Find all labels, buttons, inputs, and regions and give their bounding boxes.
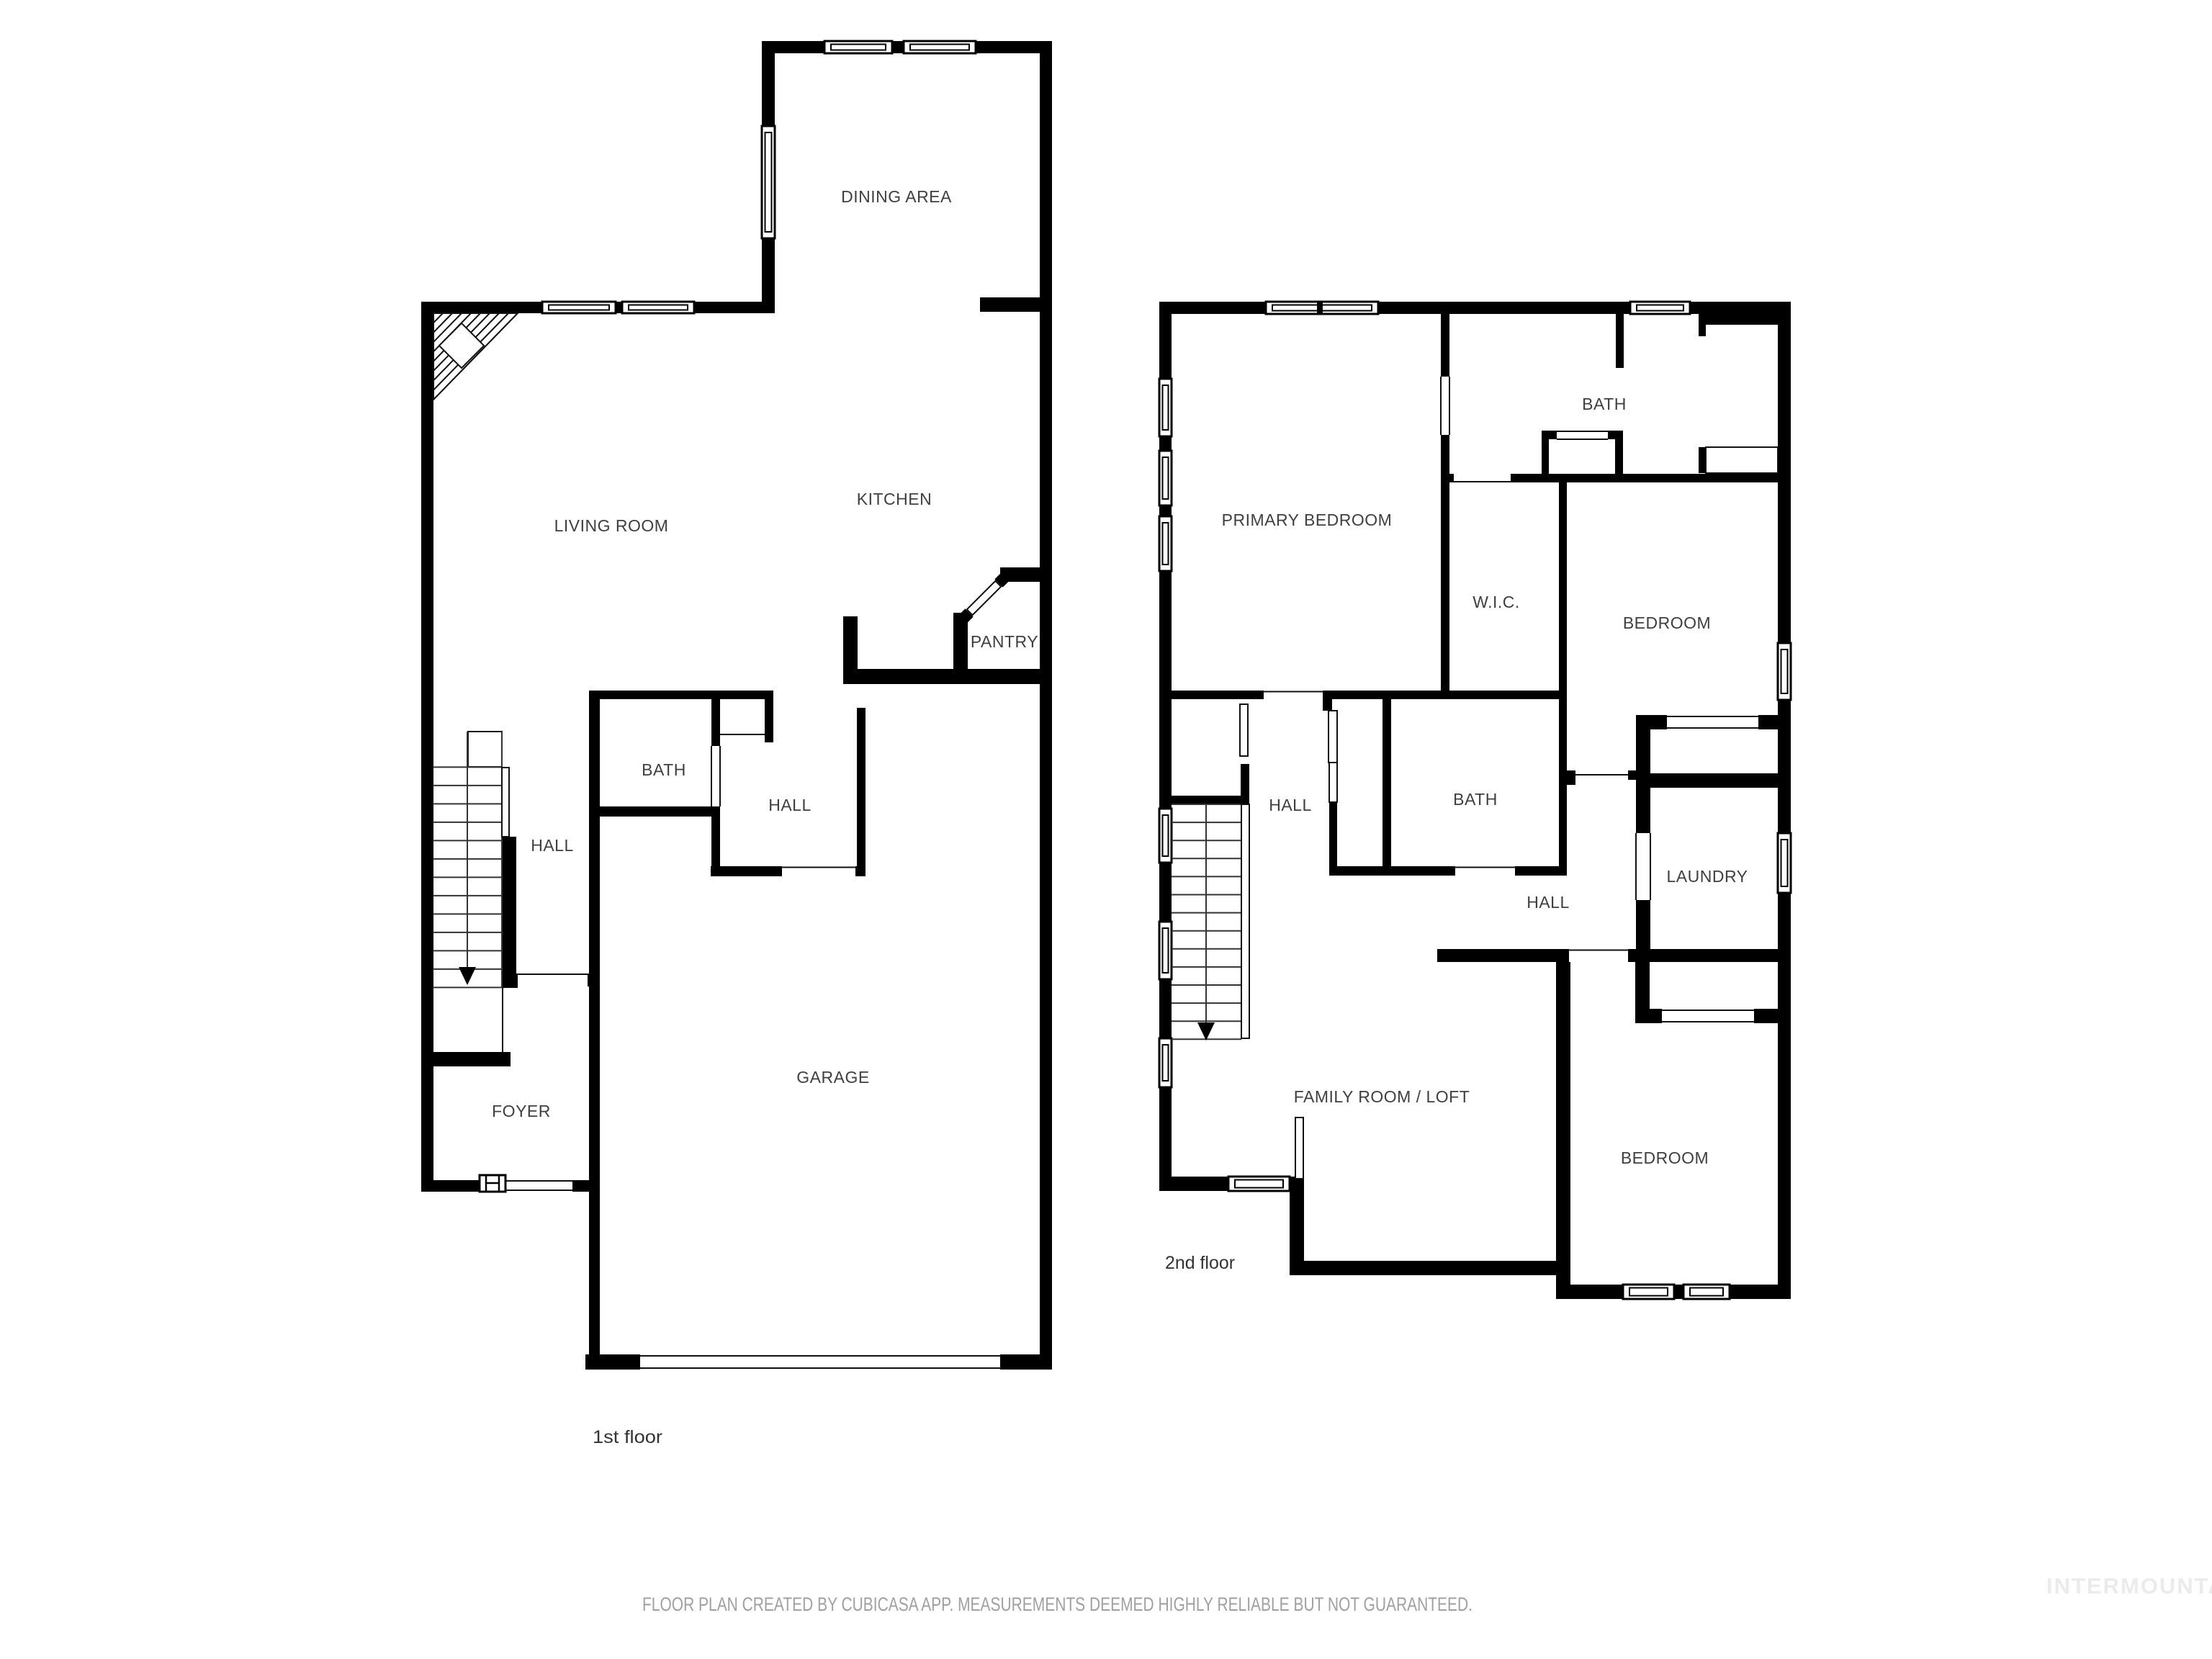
svg-text:INTERMOUNTAIN: INTERMOUNTAIN	[2046, 1573, 2212, 1599]
svg-text:BEDROOM: BEDROOM	[1623, 613, 1711, 632]
svg-text:HALL: HALL	[768, 796, 811, 814]
svg-text:HALL: HALL	[531, 836, 574, 855]
svg-text:LAUNDRY: LAUNDRY	[1667, 867, 1748, 886]
svg-text:DINING AREA: DINING AREA	[841, 187, 952, 206]
svg-text:LIVING ROOM: LIVING ROOM	[554, 516, 669, 535]
svg-text:W.I.C.: W.I.C.	[1473, 593, 1520, 611]
svg-text:1st floor: 1st floor	[593, 1427, 662, 1447]
svg-text:FLOOR PLAN CREATED BY CUBICASA: FLOOR PLAN CREATED BY CUBICASA APP. MEAS…	[642, 1593, 1473, 1615]
svg-text:KITCHEN: KITCHEN	[857, 490, 932, 508]
svg-text:FOYER: FOYER	[492, 1102, 551, 1120]
svg-text:PRIMARY BEDROOM: PRIMARY BEDROOM	[1222, 511, 1393, 529]
svg-text:2nd floor: 2nd floor	[1165, 1253, 1235, 1273]
svg-text:BATH: BATH	[1582, 395, 1627, 413]
svg-text:FAMILY ROOM / LOFT: FAMILY ROOM / LOFT	[1294, 1087, 1470, 1106]
svg-text:BATH: BATH	[642, 760, 686, 779]
svg-text:PANTRY: PANTRY	[971, 632, 1038, 651]
svg-text:HALL: HALL	[1527, 893, 1570, 912]
svg-text:BATH: BATH	[1453, 790, 1498, 809]
svg-text:GARAGE: GARAGE	[796, 1068, 869, 1087]
svg-text:HALL: HALL	[1269, 796, 1312, 814]
svg-text:BEDROOM: BEDROOM	[1621, 1148, 1709, 1167]
